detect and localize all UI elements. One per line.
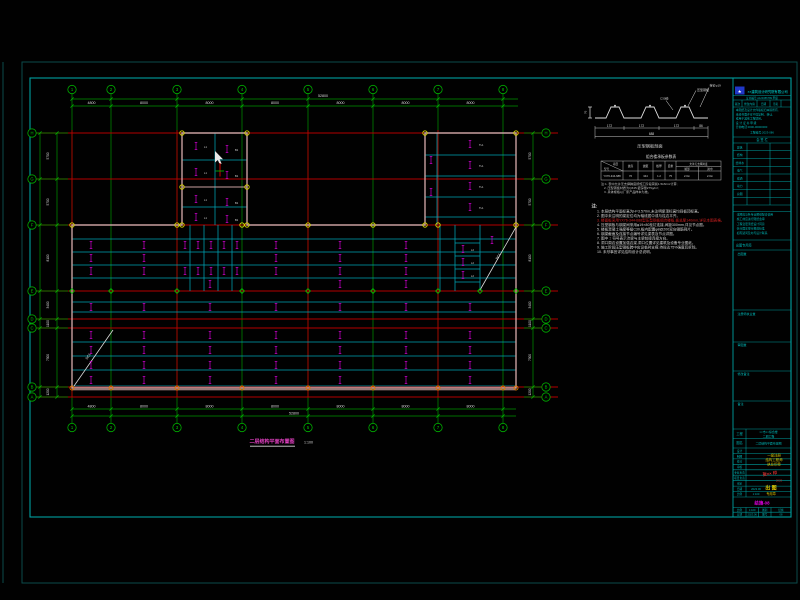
beam-mark-icon (339, 377, 342, 384)
grid-bubble-label: A (545, 395, 548, 400)
svg-text:一级注册: 一级注册 (767, 453, 781, 458)
beam-mark-icon (143, 377, 146, 384)
note-line: 6. 钢梁截面及连接节点编号详见梁表及节点详图。 (597, 231, 676, 236)
dim-text: 8100 (528, 254, 532, 261)
tb-row-label: 制图 (737, 454, 743, 458)
beam-mark-icon (339, 255, 342, 262)
dim-text: 4800 (88, 101, 96, 105)
stamp-area-label: 出图专用章 (736, 242, 753, 247)
beam-mark-icon (223, 268, 226, 275)
dim-text: 8000 (337, 405, 345, 409)
dim-text: 8000 (140, 405, 148, 409)
table-header: 板厚 (656, 164, 662, 168)
tb-bullet: ·施工前应进行图纸会审 (736, 217, 765, 221)
table-subheader: 跨中 (707, 167, 713, 171)
grid-bubble-label: B (545, 385, 548, 390)
detail-title: 压型钢板剖面 (637, 143, 662, 150)
table-corner: 型号 (604, 167, 610, 171)
drawing-name: 二层结构平面布置图 (755, 440, 781, 445)
beam-mark-icon (209, 281, 212, 288)
beam-mark-icon (469, 183, 472, 190)
grid-bubble-label: H (544, 131, 547, 136)
beam-mark-icon (223, 242, 226, 249)
beam-mark-icon (195, 196, 198, 203)
beam-mark-icon (339, 362, 342, 369)
beam-mark-icon (90, 255, 93, 262)
tb-bullet: ·工程变更须经设计同意 (736, 222, 765, 226)
beam-mark-icon (90, 242, 93, 249)
detail-total-dim: 688 (649, 132, 655, 136)
beam-label: B1 (235, 201, 239, 205)
grid-bubble-label: A (31, 395, 34, 400)
beam-mark-icon (236, 242, 239, 249)
beam-mark-icon (209, 332, 212, 339)
project-name: 二期工程 (763, 433, 775, 438)
beam-mark-icon (143, 242, 146, 249)
detail-dim: 172 (607, 124, 613, 128)
detail-callout: 栓钉φ19 (710, 83, 722, 88)
project-label: 工程 (736, 431, 743, 436)
beam-mark-icon (210, 242, 213, 249)
beam-label: L1 (204, 198, 207, 202)
note-line: 7. 图中 ⌶ 符号表示次梁与主梁铰接连接方向。 (597, 235, 670, 240)
beam-label: B1 (235, 174, 239, 178)
grid-bubble-label: G (30, 177, 33, 182)
dim-text: 7300 (46, 354, 50, 361)
beam-mark-icon (90, 377, 93, 384)
tb-row-label: 审核 (737, 465, 743, 469)
tb-row-label: 日期 (737, 487, 743, 491)
beam-mark-icon (143, 304, 146, 311)
note-line: 2. 图中未注明的梁定位均为轴线居中或与柱边平齐。 (597, 213, 680, 218)
beam-mark-icon (275, 377, 278, 384)
table-cell: 76 (629, 174, 632, 178)
rev-header: 版次 (735, 102, 741, 106)
detail-callout: 压型钢板 (697, 87, 709, 92)
beam-label: TL1 (479, 206, 484, 210)
beam-mark-icon (469, 204, 472, 211)
beam-mark-icon (405, 281, 408, 288)
grid-bubble-label: E (545, 289, 548, 294)
rev-header: 修改内容 (744, 102, 755, 106)
beam-mark-icon (210, 268, 213, 275)
mini-cell: 日期 (737, 513, 743, 517)
beam-mark-icon (184, 242, 187, 249)
tb-row-label: 项目负责 (734, 476, 745, 480)
rev-header: 日期 (761, 102, 767, 106)
box-label: 审图章 (738, 342, 747, 347)
note-line: 5. 楼板混凝土强度等级C30,板内配置φ8@200双向钢筋网片。 (597, 226, 694, 231)
beam-mark-icon (462, 272, 465, 279)
beam-mark-icon (226, 172, 229, 179)
sign-row-label: 电气 (737, 169, 743, 173)
sign-row-label: 暖通 (737, 176, 743, 180)
beam-mark-icon (469, 162, 472, 169)
beam-label: L1 (204, 171, 207, 175)
tb-row-label: 审定 (737, 481, 743, 485)
cad-viewport[interactable]: 4800480080008000800080008000800080008000… (0, 0, 800, 600)
box-label: 出图章 (738, 251, 747, 256)
grid-bubbles: 1122334455667788HHGGFFEEDDCCBBAA (28, 85, 550, 431)
table-header: 波高 (628, 164, 634, 168)
table-cell: YX76-344-688 (603, 174, 621, 178)
mini-cell: 比例 (737, 508, 743, 512)
beam-mark-icon (275, 362, 278, 369)
beam-mark-icon (90, 347, 93, 354)
svg-text:结构工程师: 结构工程师 (766, 457, 784, 462)
tb-bullet: ·执行国家现行规范标准 (736, 226, 765, 230)
tb-row-label: 设计 (737, 449, 743, 453)
detail-dim: 172 (674, 124, 680, 128)
beam-mark-icon (226, 146, 229, 153)
table-title: 组合楼承板参数表 (646, 154, 677, 159)
detail-callout: C30砼 (660, 96, 669, 101)
beam-mark-icon (469, 347, 472, 354)
beam-mark-icon (339, 332, 342, 339)
beam-mark-icon (275, 255, 278, 262)
table-cell: 1.2 (657, 174, 661, 178)
rev-header: 签名 (773, 102, 779, 106)
sign-row-label: 结构 (737, 153, 743, 157)
grid-bubble-label: B (31, 385, 34, 390)
grid-bubble-label: H (30, 131, 33, 136)
beam-mark-icon (469, 304, 472, 311)
beam-mark-icon (469, 377, 472, 384)
beam-mark-icon (339, 347, 342, 354)
beam-marks (90, 141, 494, 384)
dim-text: 7300 (528, 354, 532, 361)
dim-text: 8000 (140, 101, 148, 105)
slab-outline (72, 133, 516, 390)
note-line: 10. 未尽事宜详见结构设计总说明。 (597, 249, 653, 254)
note-line: 4. 压型钢板与钢梁间采用φ19×80栓钉连接,间距300mm,详见节点图。 (597, 222, 706, 227)
grid-bubble-label: G (544, 177, 547, 182)
dim-total: 52800 (289, 411, 299, 415)
dim-text: 8000 (402, 101, 410, 105)
box-label: 注册师执业章 (738, 311, 756, 316)
beam-mark-icon (275, 332, 278, 339)
svg-text:张×× 印: 张×× 印 (762, 469, 777, 478)
diagonal-braces (74, 227, 516, 386)
dim-text: 5700 (46, 152, 50, 159)
beam-mark-icon (209, 377, 212, 384)
dim-text: 5700 (46, 198, 50, 205)
tb-row-value: 1:100 (753, 492, 760, 496)
beam-mark-icon (143, 347, 146, 354)
dim-text: 4800 (88, 405, 96, 409)
grid-bubble-label: E (31, 289, 34, 294)
mini-cell: 图号 (762, 513, 768, 517)
framing-beams (73, 133, 517, 386)
grid-bubble-label: D (30, 317, 33, 322)
detail-height-dim: 76 (584, 110, 588, 114)
beam-label: L2 (471, 248, 474, 252)
beam-label: TL1 (479, 143, 484, 147)
table-corner: 项目 (613, 162, 619, 166)
dim-text: 8000 (271, 405, 279, 409)
dim-text: 3400 (528, 301, 532, 308)
sheet-frame (3, 62, 797, 583)
beam-mark-icon (469, 362, 472, 369)
dim-text: 1200 (46, 388, 50, 395)
table-cell: 2.0m (707, 174, 714, 178)
beam-label: L1 (204, 216, 207, 220)
dim-text: 8000 (467, 405, 475, 409)
beam-mark-icon (143, 362, 146, 369)
cursor-arrow-icon (215, 151, 224, 177)
beam-mark-icon (339, 281, 342, 288)
svg-text:2023: 2023 (776, 479, 783, 483)
drawing-name-label: 图名 (736, 440, 742, 445)
table-header: 允许无支撑跨度 (689, 162, 708, 166)
tb-bullet: ·如有疑问及时与设计联系 (736, 231, 768, 235)
table-subheader: 端部 (684, 167, 690, 171)
copyright-line: 咨询电话:0000-00000000 (736, 125, 768, 129)
tb-row-label: 专业负责 (734, 471, 745, 475)
beam-mark-icon (469, 332, 472, 339)
tb-row-label: 比例 (737, 492, 743, 496)
dimension-lines (40, 99, 533, 416)
dim-text: 1100 (528, 320, 532, 327)
beam-mark-icon (405, 268, 408, 275)
beam-mark-icon (209, 362, 212, 369)
beam-label: L1 (204, 145, 207, 149)
beam-mark-icon (462, 246, 465, 253)
note-line: 8. 洞口周边设置加强边梁,洞口位置详见建筑及设备专业图纸。 (597, 240, 695, 245)
dim-text: 3400 (46, 301, 50, 308)
beam-mark-icon (339, 242, 342, 249)
cert-number: 证书编号:A123456789 甲级 (746, 96, 778, 100)
beam-mark-icon (236, 268, 239, 275)
table-cell: 2.0m (684, 174, 691, 178)
sign-row-label: 总图 (737, 192, 743, 196)
deck-table: 组合楼承板参数表 项目 型号 波高 波距 板厚 自重 允许无支撑跨度 端部 跨中… (601, 154, 721, 194)
beam-mark-icon (226, 199, 229, 206)
note-line: 9. 施工阶段压型钢板跨中应设临时支撑,待砼达75%强度后拆除。 (597, 244, 699, 249)
beam-mark-icon (143, 268, 146, 275)
project-number: 工程编号:2023-086 (750, 130, 774, 134)
table-footnote: 3. 具体规格以厂家产品样本为准。 (604, 189, 651, 194)
general-notes: 注: 1. 本层结构平面标高为H=3.570m,未注明梁顶标高均同板顶标高。 2… (592, 203, 725, 254)
dim-text: 5700 (528, 152, 532, 159)
cad-canvas[interactable]: 4800480080008000800080008000800080008000… (0, 0, 800, 600)
table-header: 波距 (643, 164, 649, 168)
mini-cell: 1:100 (749, 508, 756, 512)
box-label: 备注 (738, 401, 744, 406)
dim-text: 8000 (271, 101, 279, 105)
mini-cell: 2023.06 (748, 513, 758, 517)
registration-stamp: 一级注册 结构工程师 执业印章 张×× 印 2023 出 图 专用章 (762, 453, 783, 497)
beam-mark-icon (430, 157, 433, 164)
dim-text: 8000 (206, 405, 214, 409)
beam-mark-icon (469, 141, 472, 148)
grid-bubble-label: C (544, 326, 547, 331)
note-line-highlight: 3. 楼面板采用YX76-344-688型压型钢板组合楼板,板总厚140mm,详… (597, 217, 724, 222)
beam-mark-icon (339, 304, 342, 311)
beam-label: TL1 (479, 164, 484, 168)
dim-text: 8000 (467, 101, 475, 105)
mini-cell: 08 (780, 513, 783, 517)
dim-text: 8000 (337, 101, 345, 105)
beam-mark-icon (195, 143, 198, 150)
beam-mark-icon (275, 304, 278, 311)
dim-text: 1200 (528, 388, 532, 395)
beam-mark-icon (197, 268, 200, 275)
drawing-caption: 二层结构平面布置图 1:100 (249, 438, 313, 446)
dim-text: 1100 (46, 320, 50, 327)
beam-label: B1 (235, 218, 239, 222)
grid-bubble-label: F (545, 223, 548, 228)
grid-bubble-label: F (31, 223, 34, 228)
beam-label: B1 (235, 148, 239, 152)
svg-text:执业印章: 执业印章 (767, 462, 781, 467)
beam-mark-icon (405, 255, 408, 262)
table-cell: 75 (669, 174, 672, 178)
grid-bubble-label: D (544, 317, 547, 322)
dim-text: 8000 (206, 101, 214, 105)
svg-text:出 图: 出 图 (765, 485, 776, 492)
beam-mark-icon (90, 332, 93, 339)
beam-mark-icon (195, 169, 198, 176)
drawing-number: 结施-08 (754, 500, 770, 507)
beam-mark-icon (491, 237, 494, 244)
caption-scale: 1:100 (304, 441, 313, 445)
tb-row-label: 校对 (737, 460, 743, 464)
beam-mark-icon (143, 332, 146, 339)
beam-mark-icon (184, 268, 187, 275)
beam-mark-icon (143, 255, 146, 262)
beam-mark-icon (209, 347, 212, 354)
beam-mark-icon (430, 189, 433, 196)
beam-mark-icon (226, 216, 229, 223)
beam-mark-icon (405, 347, 408, 354)
table-cell: 344 (643, 174, 648, 178)
tb-bullet: ·本图应与各专业图纸配合使用 (736, 213, 773, 217)
beam-mark-icon (275, 268, 278, 275)
detail-dim: 172 (639, 124, 645, 128)
sign-table-title: 会 签 栏 (756, 137, 768, 142)
beam-mark-icon (197, 242, 200, 249)
beam-label: L2 (471, 274, 474, 278)
beam-mark-icon (275, 347, 278, 354)
dim-text: 8100 (46, 254, 50, 261)
company-name: ××建筑设计研究院有限公司 (748, 89, 788, 94)
sign-row-label: 建筑 (737, 145, 743, 149)
deck-profile-detail: 压型钢板 栓钉φ19 C30砼 172 172 172 86 688 76 压型… (584, 83, 722, 150)
beam-mark-icon (405, 377, 408, 384)
beam-mark-icon (90, 304, 93, 311)
dim-text: 5700 (528, 198, 532, 205)
sign-row-label: 动力 (737, 184, 743, 188)
detail-dim: 86 (699, 124, 703, 128)
beam-mark-icon (195, 214, 198, 221)
beam-mark-icon (90, 268, 93, 275)
node-markers (70, 131, 519, 390)
sign-row-label: 给排水 (736, 161, 745, 165)
grid-bubble-label: C (30, 326, 33, 331)
beam-mark-icon (405, 332, 408, 339)
beam-mark-icon (462, 259, 465, 266)
beam-label: L2 (471, 261, 474, 265)
beam-mark-icon (405, 362, 408, 369)
mini-cell: 结施 (778, 508, 784, 512)
beam-mark-icon (405, 242, 408, 249)
beam-label: TL1 (479, 185, 484, 189)
beam-mark-icon (209, 304, 212, 311)
beam-mark-icon (339, 268, 342, 275)
tb-row-value: 2023.06 (751, 487, 761, 491)
dim-total: 52800 (318, 94, 328, 98)
note-line: 1. 本层结构平面标高为H=3.570m,未注明梁顶标高均同板顶标高。 (597, 208, 701, 213)
table-header: 自重 (668, 164, 674, 168)
box-label: 修改备注 (738, 371, 750, 376)
beam-mark-icon (275, 242, 278, 249)
beam-mark-icon (405, 304, 408, 311)
dim-text: 8000 (402, 405, 410, 409)
mini-cell: 图别 (762, 508, 768, 512)
caption-title: 二层结构平面布置图 (249, 438, 294, 445)
svg-text:专用章: 专用章 (766, 491, 776, 496)
